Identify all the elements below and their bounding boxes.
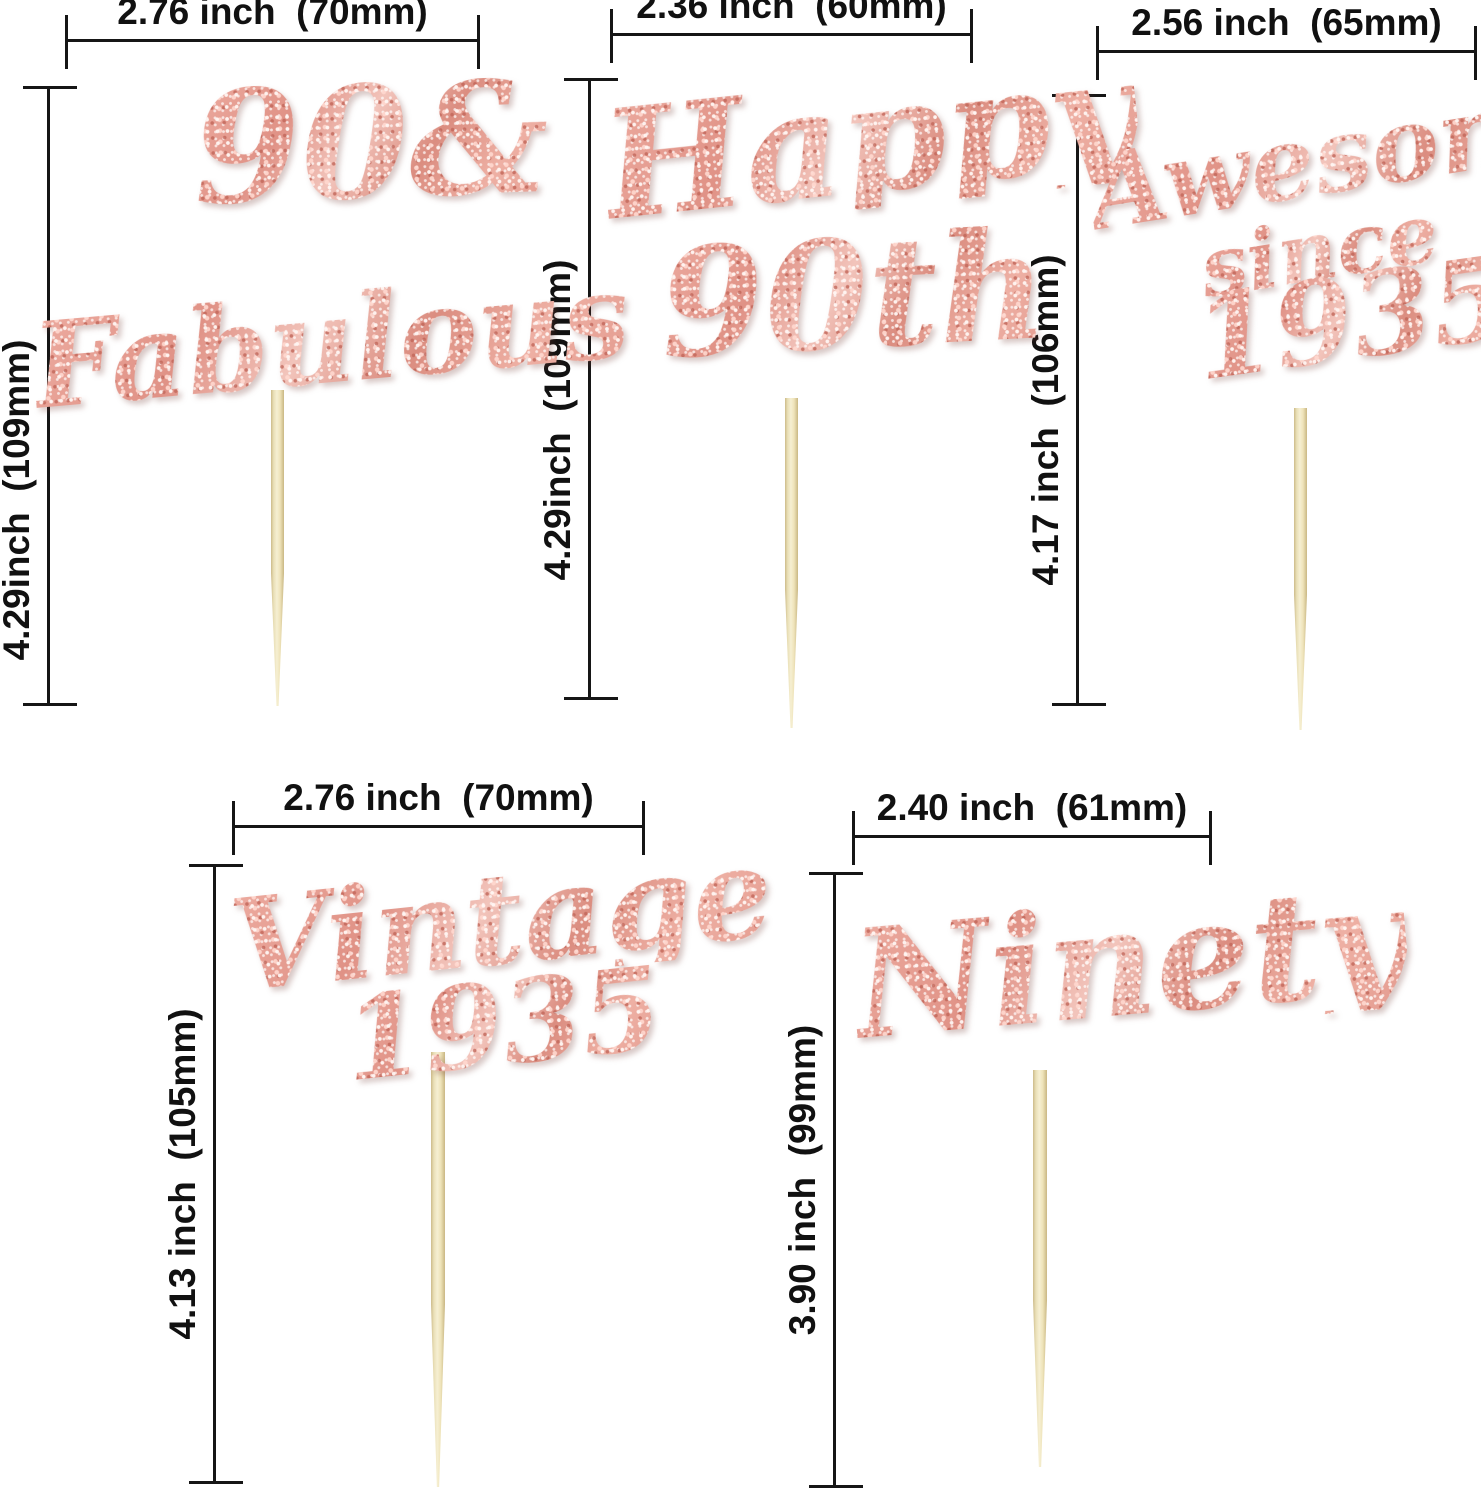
tick-mark [1209,811,1212,865]
tick-mark [809,1485,863,1488]
width-dimension-label: 2.40 inch (61mm) [877,787,1188,829]
height-dimension-label: 3.90 inch (99mm) [782,1025,824,1336]
topper-text-line: 90th [657,216,1051,374]
toothpick-stick [1033,1070,1047,1467]
topper-text-line: 90& [191,66,551,221]
topper-text-line: 1935 [339,956,666,1093]
topper-text-line: 1935 [1188,244,1481,392]
product-dimension-diagram: 2.76 inch (70mm) 4.29inch (109mm) 90& Fa… [0,0,1481,1500]
height-dimension: 3.90 inch (99mm) [833,873,836,1487]
tick-mark [809,872,863,875]
width-dimension: 2.40 inch (61mm) [852,835,1212,838]
tick-mark [852,811,855,865]
topper-text-line: Ninety [847,869,1412,1055]
